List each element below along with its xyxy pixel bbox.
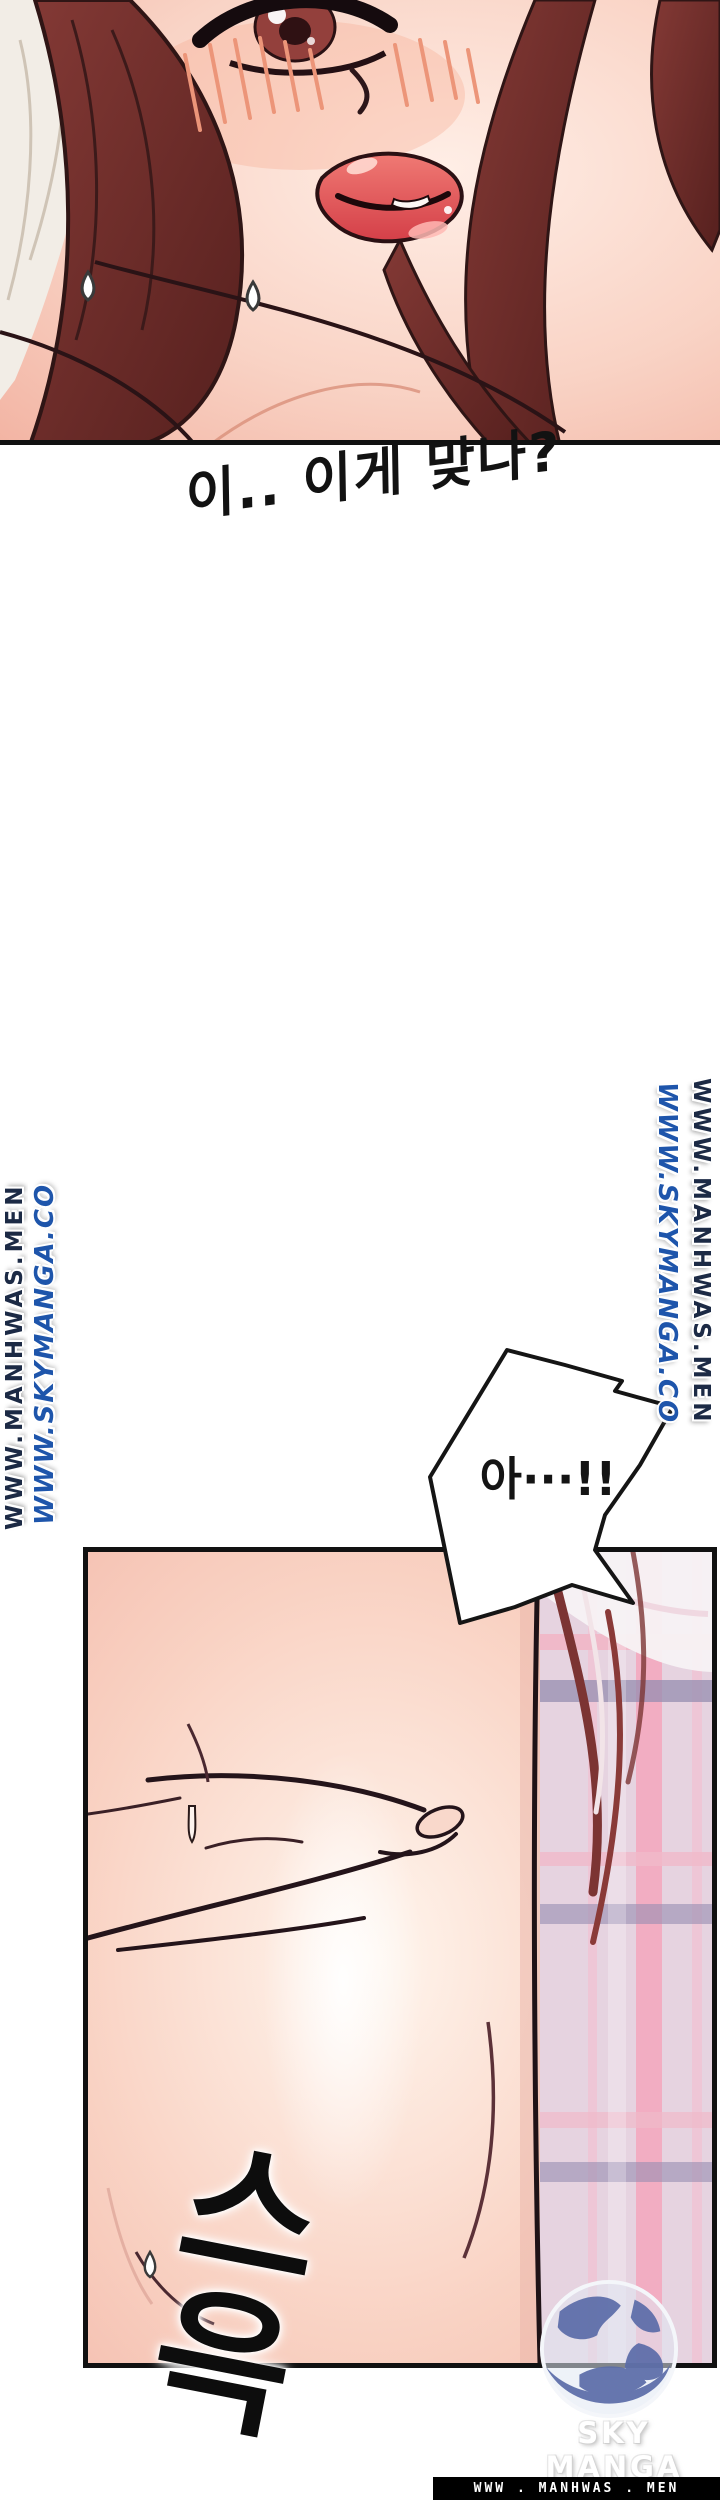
lips bbox=[317, 154, 461, 242]
face-closeup-art bbox=[0, 0, 720, 445]
watermark-skymanga-left: WWW.SKYMANGA.CO bbox=[30, 1085, 60, 1525]
watermark-manhwas-left: WWW.MANHWAS.MEN bbox=[2, 1078, 28, 1530]
skymanga-globe-logo bbox=[536, 2276, 682, 2422]
site-footer-text: WWW . MANHWAS . MEN bbox=[474, 2481, 680, 2496]
skymanga-logo-label: SKY MANGA bbox=[514, 2416, 714, 2484]
webtoon-page: 이.. 이게 맞나? WWW.MANHWAS.MEN WWW.SKYMANGA.… bbox=[0, 0, 720, 2500]
watermark-skymanga-right: WWW.SKYMANGA.CO bbox=[652, 1082, 682, 1402]
site-footer-bar: WWW . MANHWAS . MEN bbox=[433, 2477, 720, 2500]
panel-face-closeup bbox=[0, 0, 720, 445]
watermark-manhwas-right: WWW.MANHWAS.MEN bbox=[688, 1078, 714, 1530]
sweat-drip bbox=[189, 1806, 196, 1842]
plaid-blanket bbox=[540, 1552, 712, 2363]
speech-bubble-text: 아···!! bbox=[480, 1452, 617, 1506]
